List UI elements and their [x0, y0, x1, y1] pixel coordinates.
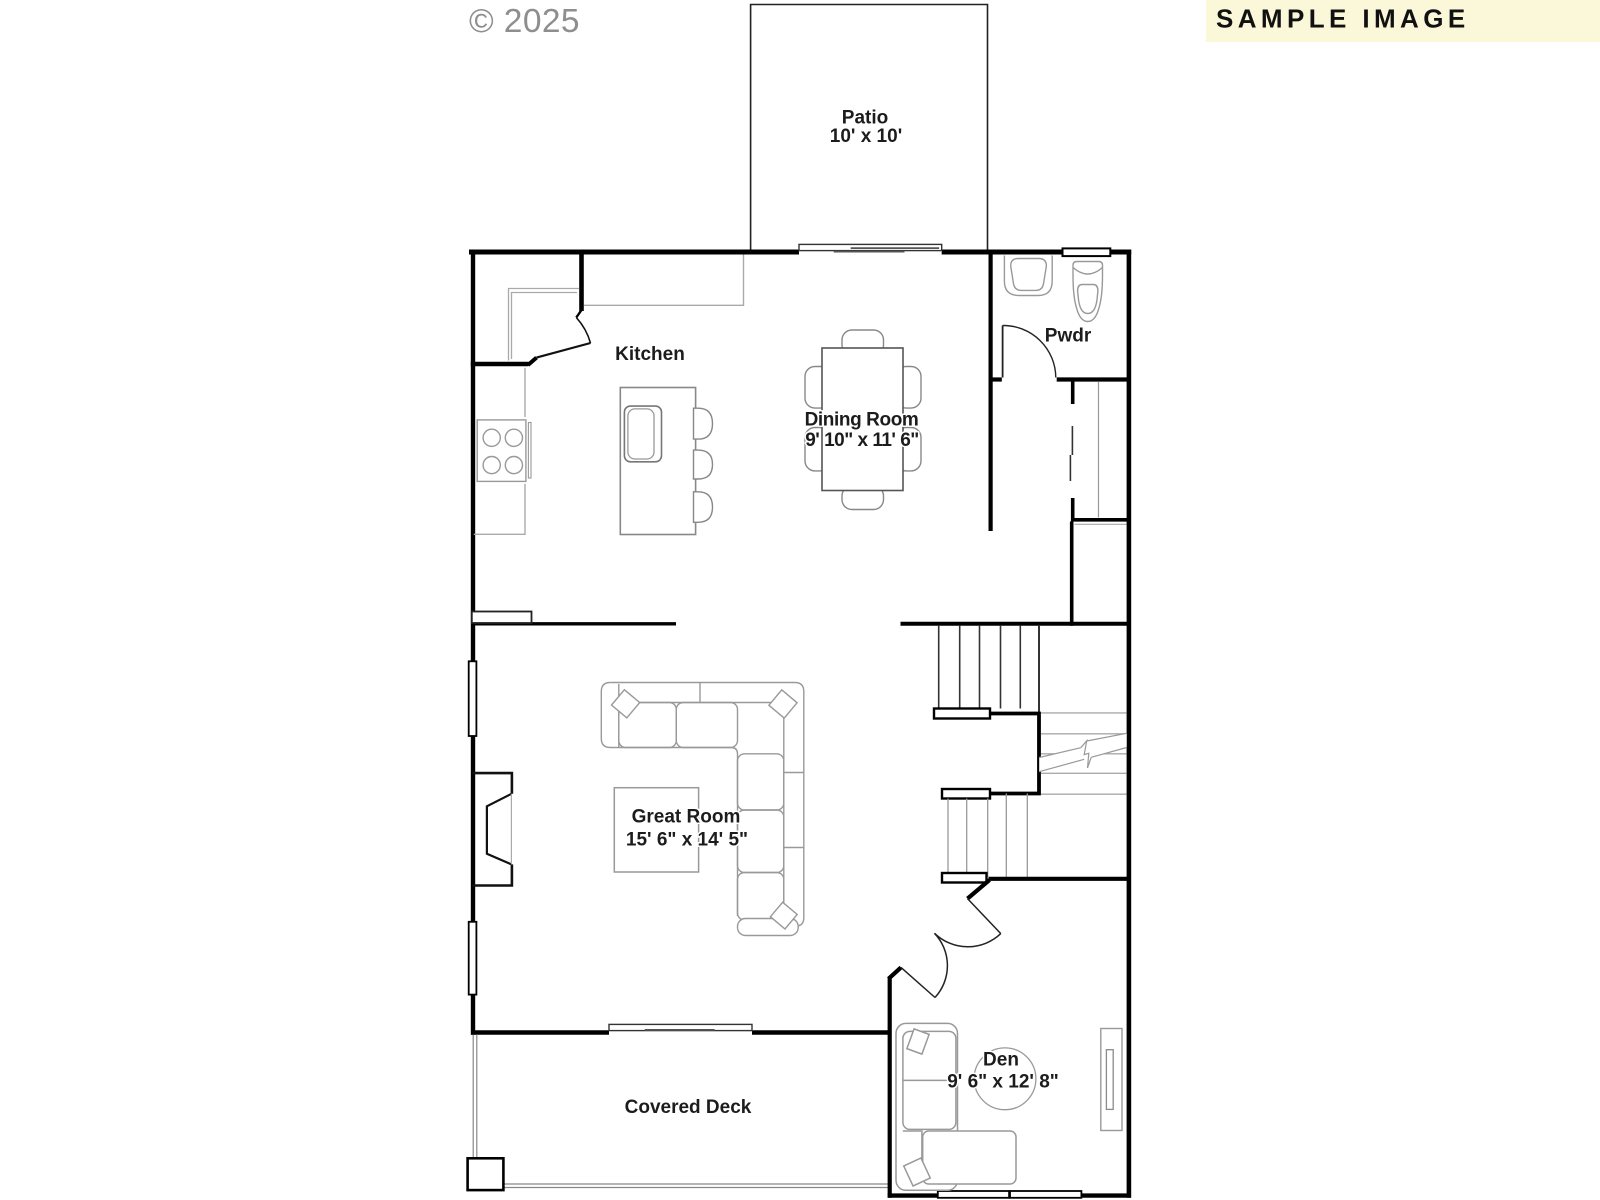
- svg-text:9' 10" x 11' 6": 9' 10" x 11' 6": [805, 430, 919, 451]
- svg-text:© 2025: © 2025: [469, 3, 580, 40]
- svg-text:SAMPLE IMAGE: SAMPLE IMAGE: [1216, 4, 1470, 34]
- svg-text:Great Room: Great Room: [632, 807, 741, 828]
- svg-text:Kitchen: Kitchen: [615, 344, 685, 365]
- svg-text:Pwdr: Pwdr: [1045, 326, 1092, 347]
- svg-text:15' 6" x 14' 5": 15' 6" x 14' 5": [626, 830, 748, 851]
- svg-text:Den: Den: [983, 1050, 1019, 1071]
- svg-text:9' 6" x 12' 8": 9' 6" x 12' 8": [947, 1072, 1059, 1093]
- svg-text:10' x 10': 10' x 10': [830, 126, 902, 147]
- svg-text:Covered Deck: Covered Deck: [625, 1097, 752, 1118]
- svg-text:Dining Room: Dining Room: [805, 409, 919, 430]
